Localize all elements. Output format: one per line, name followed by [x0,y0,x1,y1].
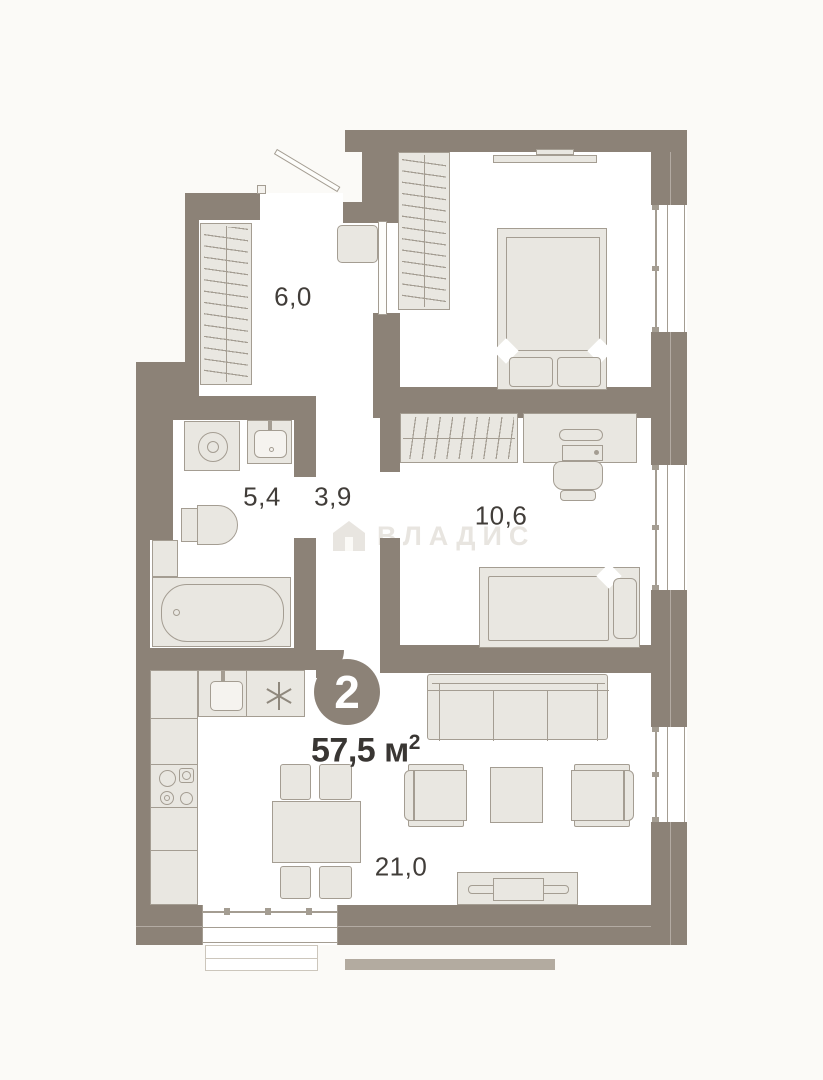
dining-chair [280,764,311,800]
wall-bedroom2-left-lower [380,538,400,650]
wall-right-2 [651,332,687,465]
floor-plan: ВЛАДИС [0,0,823,1080]
wall-entry-cap [185,193,260,220]
wall-bedroom2-living-divider [380,645,651,673]
room-area-label-hallway: 6,0 [274,282,312,313]
entry-cabinet [337,225,378,263]
armchair-left [404,764,468,827]
bedroom-door-leaf [378,221,387,315]
entry-door-stop [257,185,266,194]
coffee-table [490,767,543,823]
tv-unit [493,878,544,901]
armchair-right [570,764,634,827]
wall-right-3 [651,590,687,727]
dining-chair [319,866,352,899]
wall-bottom-left [136,905,202,945]
kitchen-counter-top [198,670,305,717]
armchair-seat [414,770,467,821]
wall-bathroom-right-lower [294,538,316,650]
wall-right-1 [651,152,687,205]
wall-bedroom2-left-upper [380,418,400,472]
bathtub-drain [173,609,180,616]
bed-pillow [557,357,601,387]
bedroom-wardrobe [398,152,450,310]
bed-pillow [613,578,637,639]
exterior-strip [345,959,555,970]
wall-hallway-left [185,220,199,362]
desk-monitor [559,429,603,441]
wardrobe-rail [424,155,425,307]
wall-entry-step [343,202,362,223]
dining-table [272,801,361,863]
hallway-wardrobe [200,223,252,385]
desk [523,413,637,463]
watermark-house-icon [332,520,366,552]
single-bed [479,567,640,648]
sink-faucet [268,421,272,430]
bedroom-wall-shelf [493,155,597,163]
wall-bathroom-bottom [136,648,316,670]
kitchen-counter-left [150,670,198,905]
total-area-label: 57,5 м2 [311,731,420,770]
window-sill-exterior [205,945,318,971]
wall-bathroom-top [173,396,316,420]
washer-drum-inner [207,441,219,453]
double-bed [497,228,607,390]
desk-printer [562,445,603,461]
entry-door-leaf [274,149,341,192]
room-area-label-corridor: 3,9 [314,482,352,513]
hob-symbol-icon [265,682,293,710]
wall-hall-bedroom-lower [373,313,400,390]
room-area-label-bedroom: 10,6 [475,501,528,532]
wall-bathroom-corner-block [136,362,199,396]
wardrobe-rail [403,438,515,439]
stove-burner [180,792,193,805]
kitchen-faucet [221,671,225,681]
room-area-label-bathroom: 5,4 [243,482,281,513]
bedroom2-wardrobe [400,413,518,463]
kitchen-sink [210,681,243,711]
bathroom-sink [247,420,292,464]
toilet-bowl [197,505,238,545]
sofa [427,674,608,740]
bed-pillow [509,357,553,387]
sink-basin [254,430,287,458]
window-bedroom-second [651,465,687,590]
wall-bathroom-left-thick [150,396,173,540]
sink-drain [269,447,274,452]
bed-blanket [506,237,600,351]
washing-machine [184,421,240,471]
stove-burner [159,770,176,787]
window-living [651,727,687,822]
desk-chair [553,461,603,490]
stove-burner [182,771,191,780]
bed-blanket [488,576,609,641]
bedroom-wall-shelf-bracket [536,149,574,155]
wardrobe-rail [226,226,227,382]
window-kitchen [202,905,338,945]
dining-chair [280,866,311,899]
stove-burner [164,795,170,801]
rooms-count: 2 [334,665,360,719]
wall-right-4 [651,822,687,945]
wall-bathroom-right-upper [294,420,316,477]
wall-bottom-main [338,905,651,945]
bathtub [152,577,291,647]
tv-stand [457,872,578,905]
armchair-seat [571,770,624,821]
rooms-count-badge: 2 [314,659,380,725]
window-bedroom [651,205,687,332]
bathroom-shelf [152,540,178,577]
room-area-label-living-kitchen: 21,0 [375,852,428,883]
desk-chair-base [560,490,596,501]
